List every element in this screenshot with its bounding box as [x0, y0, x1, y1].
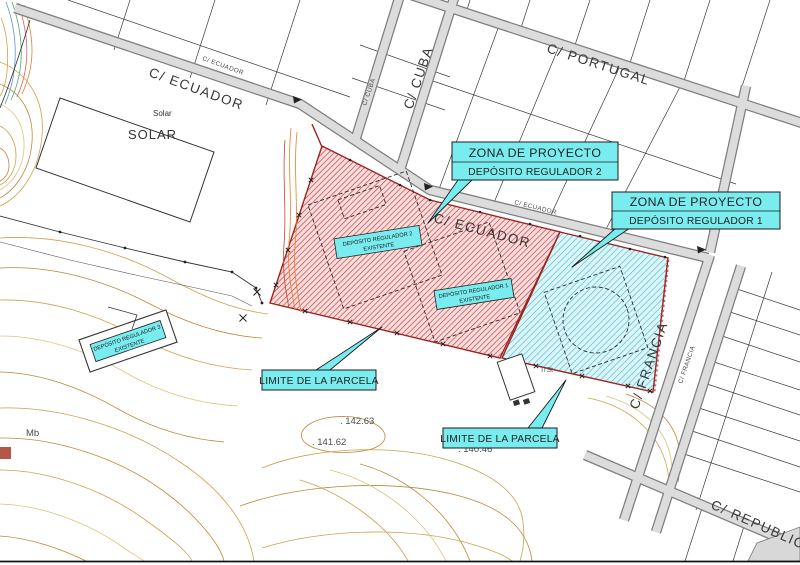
- left-edge-marker: [0, 447, 11, 459]
- solar-building: [36, 98, 214, 222]
- zona2-line1: ZONA DE PROYECTO: [469, 146, 602, 160]
- street-label-republic: C/ REPUBLIC: [709, 497, 800, 552]
- zona1-line2: DEPÓSITO REGULADOR 1: [629, 214, 763, 227]
- trst-label: TrSt: [540, 367, 553, 374]
- callout-zona-proyecto-2: ZONA DE PROYECTO DEPÓSITO REGULADOR 2: [452, 142, 618, 180]
- mb-label: Mb: [26, 428, 39, 439]
- existing-regulator-3-building: DEPÓSITO REGULADOR 3 EXISTENTE: [79, 310, 177, 372]
- zona2-line2: DEPÓSITO REGULADOR 2: [468, 165, 602, 178]
- zona1-line1: ZONA DE PROYECTO: [630, 195, 763, 209]
- limite1-text: LIMITE DE LA PARCELA: [259, 376, 378, 387]
- callout-zona-proyecto-1: ZONA DE PROYECTO DEPÓSITO REGULADOR 1: [612, 192, 780, 229]
- elevation-142-63: . 142.63: [340, 416, 374, 427]
- limite2-text: LIMITE DE LA PARCELA: [440, 434, 559, 445]
- site-plan-drawing: DEPÓSITO REGULADOR 3 EXISTENTE C/ ECUADO…: [0, 0, 800, 565]
- solar-label-large: SOLAR: [128, 127, 177, 142]
- elevation-141-62: . 141.62: [312, 437, 346, 448]
- site-plan-canvas: DEPÓSITO REGULADOR 3 EXISTENTE C/ ECUADO…: [0, 0, 800, 565]
- solar-label-small: Solar: [153, 109, 172, 118]
- callout-limite-parcela-2: LIMITE DE LA PARCELA: [440, 428, 559, 448]
- callout-limite-parcela-1: LIMITE DE LA PARCELA: [259, 370, 378, 390]
